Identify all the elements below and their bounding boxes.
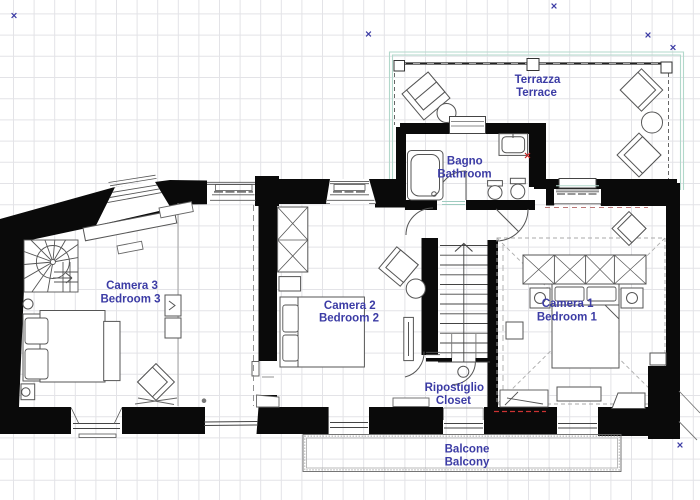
- svg-text:Camera 1: Camera 1: [542, 298, 594, 310]
- svg-text:Terrace: Terrace: [516, 87, 557, 99]
- svg-text:Bedroom 3: Bedroom 3: [100, 294, 160, 306]
- svg-text:Bedroom 1: Bedroom 1: [537, 312, 598, 324]
- svg-text:Closet: Closet: [436, 395, 471, 407]
- svg-text:Balcony: Balcony: [445, 457, 490, 469]
- svg-text:Terrazza: Terrazza: [515, 74, 561, 86]
- svg-text:Bedroom 2: Bedroom 2: [319, 313, 379, 325]
- svg-text:Bathroom: Bathroom: [437, 169, 491, 181]
- svg-text:Ripostiglio: Ripostiglio: [425, 382, 484, 394]
- svg-text:Camera 2: Camera 2: [324, 300, 376, 312]
- svg-text:Balcone: Balcone: [445, 444, 490, 456]
- svg-text:Bagno: Bagno: [447, 156, 483, 168]
- svg-text:Camera 3: Camera 3: [106, 280, 158, 292]
